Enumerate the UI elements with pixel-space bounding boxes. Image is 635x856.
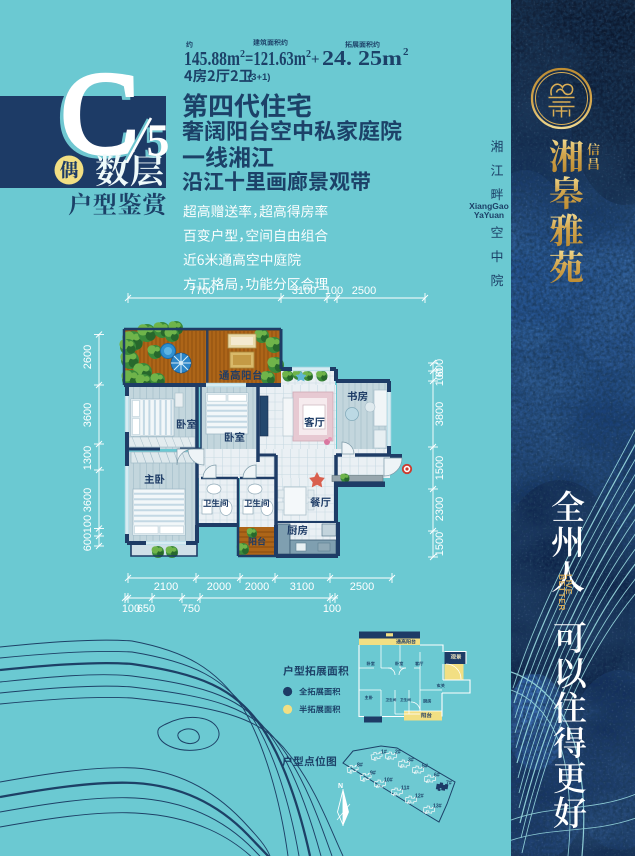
svg-text:3100: 3100 xyxy=(292,285,316,297)
svg-text:=121.63m: =121.63m xyxy=(245,48,306,70)
svg-text:8#: 8# xyxy=(357,763,363,769)
svg-text:9#: 9# xyxy=(370,771,376,777)
svg-text:3100: 3100 xyxy=(290,581,314,593)
svg-text:2000: 2000 xyxy=(207,581,231,593)
svg-text:BETTER: BETTER xyxy=(557,574,567,611)
svg-text:1500: 1500 xyxy=(434,532,446,556)
svg-text:600: 600 xyxy=(82,533,94,551)
svg-text:750: 750 xyxy=(182,603,200,615)
svg-text:650: 650 xyxy=(137,603,155,615)
svg-text:2#: 2# xyxy=(395,750,401,756)
svg-text:2500: 2500 xyxy=(350,581,374,593)
svg-text:100: 100 xyxy=(325,285,343,297)
svg-text:100: 100 xyxy=(82,515,94,533)
svg-text:145.88m: 145.88m xyxy=(184,48,240,70)
svg-text:7#: 7# xyxy=(446,781,452,787)
svg-text:2500: 2500 xyxy=(352,285,376,297)
svg-text:2300: 2300 xyxy=(434,497,446,521)
svg-text:5#: 5# xyxy=(422,764,428,770)
svg-text:3600: 3600 xyxy=(82,488,94,512)
svg-text:+: + xyxy=(311,52,320,68)
svg-text:1300: 1300 xyxy=(82,446,94,470)
svg-text:24. 25m: 24. 25m xyxy=(322,46,403,70)
svg-text:N: N xyxy=(338,783,343,790)
svg-text:3600: 3600 xyxy=(82,403,94,427)
svg-text:12#: 12# xyxy=(415,794,424,800)
svg-text:2: 2 xyxy=(403,46,409,58)
svg-text:11#: 11# xyxy=(401,786,409,792)
svg-text:1500: 1500 xyxy=(434,456,446,480)
svg-text:3#: 3# xyxy=(408,758,414,764)
svg-text:13#: 13# xyxy=(433,804,442,810)
svg-text:2600: 2600 xyxy=(82,345,94,369)
svg-text:100: 100 xyxy=(434,368,446,386)
svg-text:7700: 7700 xyxy=(190,285,214,297)
svg-text:(3+1): (3+1) xyxy=(248,72,270,83)
svg-text:6#: 6# xyxy=(434,773,440,779)
svg-text:YaYuan: YaYuan xyxy=(474,210,504,220)
svg-text:3800: 3800 xyxy=(434,402,446,426)
svg-text:2100: 2100 xyxy=(154,581,178,593)
svg-text:2000: 2000 xyxy=(245,581,269,593)
svg-text:10#: 10# xyxy=(384,778,393,784)
svg-text:100: 100 xyxy=(323,603,341,615)
